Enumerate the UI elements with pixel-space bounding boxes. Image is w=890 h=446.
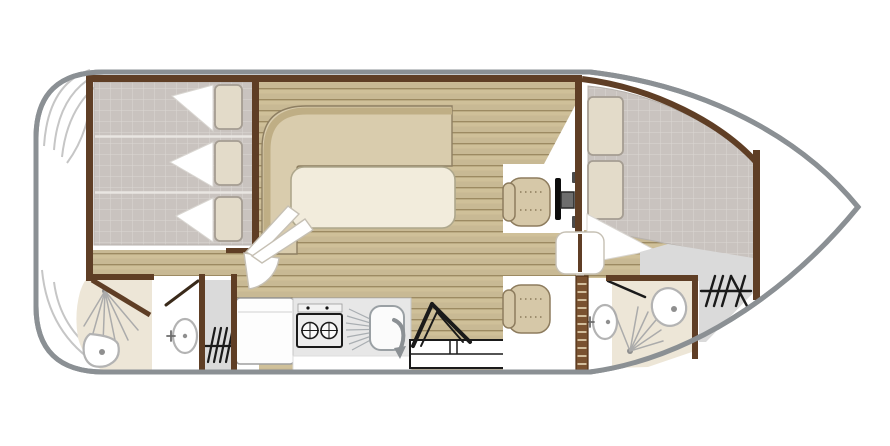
pillow xyxy=(215,141,242,185)
helm-seat xyxy=(503,178,550,226)
aft-cabin-right-wall xyxy=(252,75,259,253)
galley-left-wall xyxy=(231,274,237,372)
aft-bathroom-right-wall xyxy=(199,274,205,372)
passenger-seat xyxy=(503,285,550,333)
bow-bathroom xyxy=(586,281,692,369)
aft-bathroom xyxy=(76,278,234,370)
salon-table xyxy=(291,167,455,228)
boat-floorplan xyxy=(0,0,890,446)
bow-cabin-right-wall xyxy=(753,150,760,300)
bow-bathroom-right-wall xyxy=(692,275,698,359)
bow-cabin-door-frame xyxy=(578,234,582,272)
pillow xyxy=(215,85,242,129)
aft-cabin-left-wall xyxy=(86,75,93,281)
pillow xyxy=(588,97,623,155)
steering-column xyxy=(561,192,574,208)
aft-cabin xyxy=(94,82,255,245)
helm-bulkhead-wall xyxy=(575,75,582,233)
steering-wheel-icon xyxy=(555,178,561,220)
pillow xyxy=(215,197,242,241)
galley-cabinet xyxy=(293,356,411,370)
top-cabin-wall xyxy=(86,75,582,82)
bow-bathroom-top-wall xyxy=(606,275,698,281)
aft-corridor-floor xyxy=(93,250,259,276)
aft-bathroom-top-wall xyxy=(86,274,154,280)
passenger-seat-area xyxy=(503,276,579,370)
fridge xyxy=(236,298,294,364)
toilet-symbol xyxy=(84,334,119,367)
galley xyxy=(236,298,411,370)
floorplan-canvas xyxy=(0,0,890,446)
pillow xyxy=(588,161,623,219)
access-ladder xyxy=(576,276,588,370)
hob-icon xyxy=(297,304,342,347)
